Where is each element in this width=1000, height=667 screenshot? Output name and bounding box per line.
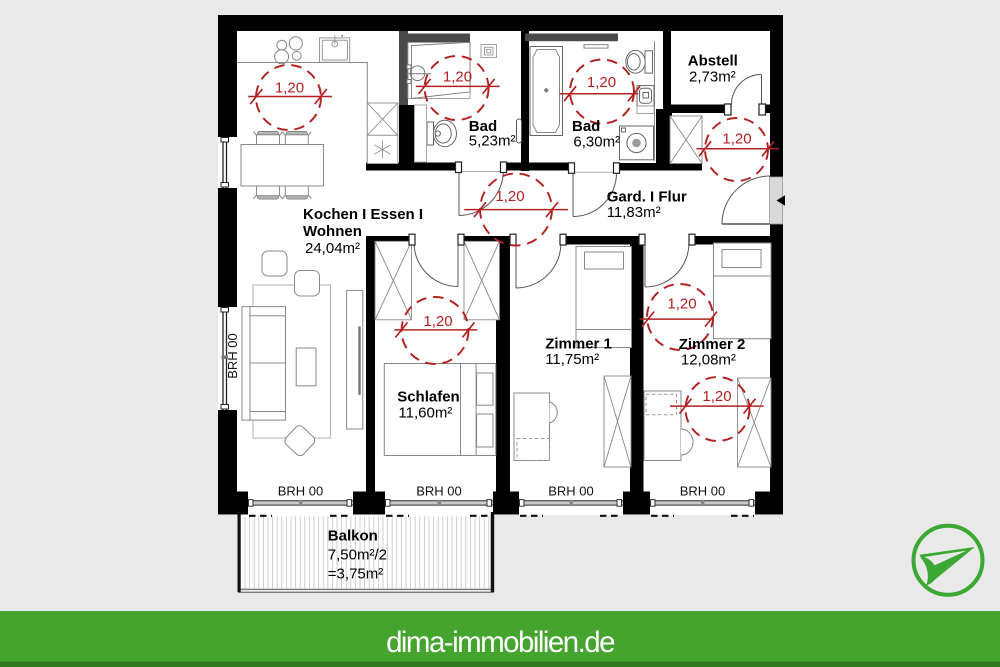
svg-text:11,83m²: 11,83m²	[607, 204, 661, 221]
svg-text:6,30m²: 6,30m²	[573, 134, 620, 151]
svg-text:7,50m²/2: 7,50m²/2	[328, 547, 387, 564]
svg-text:11,75m²: 11,75m²	[545, 351, 599, 368]
svg-text:Abstell: Abstell	[688, 53, 738, 70]
svg-text:Balkon: Balkon	[328, 528, 378, 545]
svg-text:Bad: Bad	[572, 118, 600, 135]
svg-text:Kochen I Essen I: Kochen I Essen I	[303, 206, 423, 223]
svg-text:1,20: 1,20	[423, 313, 452, 330]
svg-text:Wohnen: Wohnen	[303, 223, 362, 240]
svg-text:1,20: 1,20	[495, 188, 524, 205]
svg-text:=3,75m²: =3,75m²	[328, 566, 383, 583]
svg-text:BRH 00: BRH 00	[416, 484, 462, 499]
svg-text:1,20: 1,20	[443, 69, 472, 86]
svg-text:Zimmer 2: Zimmer 2	[679, 336, 746, 353]
svg-text:BRH 00: BRH 00	[680, 484, 726, 499]
svg-text:Gard. I Flur: Gard. I Flur	[607, 189, 687, 206]
svg-text:BRH 00: BRH 00	[548, 484, 594, 499]
svg-text:1,20: 1,20	[587, 74, 616, 91]
svg-text:dima-immobilien.de: dima-immobilien.de	[386, 626, 615, 659]
svg-text:1,20: 1,20	[722, 131, 751, 148]
svg-text:1,20: 1,20	[667, 296, 696, 313]
svg-text:Zimmer 1: Zimmer 1	[545, 336, 612, 353]
svg-text:BRH 00: BRH 00	[278, 484, 324, 499]
svg-text:1,20: 1,20	[275, 80, 304, 97]
svg-text:12,08m²: 12,08m²	[681, 352, 736, 369]
svg-text:11,60m²: 11,60m²	[398, 405, 452, 422]
svg-text:24,04m²: 24,04m²	[305, 240, 360, 257]
svg-text:5,23m²: 5,23m²	[469, 133, 516, 150]
svg-text:BRH 00: BRH 00	[225, 333, 240, 379]
svg-text:Schlafen: Schlafen	[397, 389, 460, 406]
svg-text:2,73m²: 2,73m²	[689, 69, 736, 86]
svg-text:1,20: 1,20	[702, 388, 731, 405]
